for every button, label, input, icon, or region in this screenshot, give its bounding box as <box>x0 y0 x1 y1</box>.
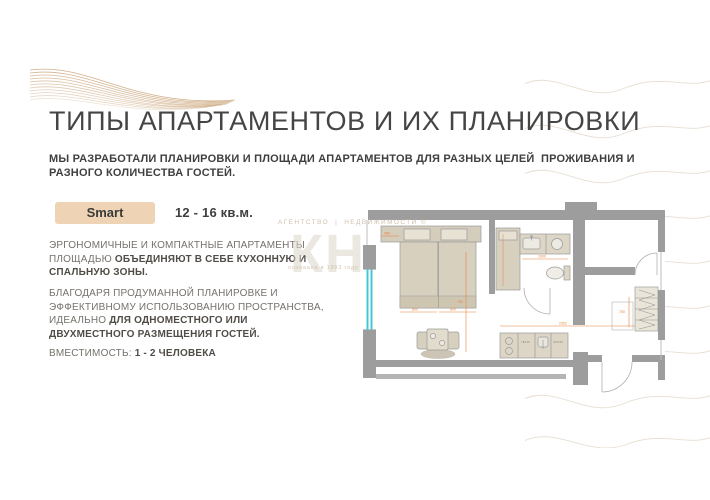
dining-table-group <box>417 329 459 359</box>
basin-icon <box>552 239 563 250</box>
plate-icon <box>430 333 435 338</box>
dim-label: 800 <box>450 308 456 312</box>
dim-label: 700 <box>619 310 625 314</box>
page-title: ТИПЫ АПАРТАМЕНТОВ И ИХ ПЛАНИРОВКИ <box>49 106 649 137</box>
plate-icon <box>439 340 444 345</box>
watermark-separator: | <box>335 219 338 226</box>
dim-label: 800 <box>412 308 418 312</box>
dim-label: 450 <box>384 232 390 236</box>
apartment-type-badge: Smart <box>55 202 155 224</box>
capacity-line: ВМЕСТИМОСТЬ: 1 - 2 ЧЕЛОВЕКА <box>49 347 329 361</box>
dim-label: 750 <box>457 300 463 304</box>
floor-plan: ПМ 45 ХОЛ 60 <box>363 202 665 397</box>
subtitle-text: МЫ РАЗРАБОТАЛИ ПЛАНИРОВКИ И ПЛОЩАДИ АПАР… <box>49 152 669 180</box>
paragraph-1: ЭРГОНОМИЧНЫЕ И КОМПАКТНЫЕ АПАРТАМЕНТЫ ПЛ… <box>49 239 307 280</box>
kitchen-label: ХОЛ 60 <box>553 340 563 344</box>
watermark-agency: АГЕНТСТВО <box>278 219 329 226</box>
table-icon <box>427 329 448 350</box>
chair-icon <box>447 332 459 349</box>
dim-label: 2352 <box>559 322 567 326</box>
rug <box>421 350 455 359</box>
slide: ТИПЫ АПАРТАМЕНТОВ И ИХ ПЛАНИРОВКИ МЫ РАЗ… <box>0 0 710 500</box>
kitchen-group: ПМ 45 ХОЛ 60 <box>500 333 568 358</box>
kitchen-label: ПМ 45 <box>522 340 531 344</box>
toilet-icon <box>547 267 564 279</box>
dim-label: 1000 <box>538 255 546 259</box>
area-range-label: 12 - 16 кв.м. <box>175 205 253 220</box>
window <box>363 269 376 330</box>
capacity-value: 1 - 2 ЧЕЛОВЕКА <box>135 348 216 359</box>
paragraph-2: БЛАГОДАРЯ ПРОДУМАННОЙ ПЛАНИРОВКЕ И ЭФФЕК… <box>49 287 325 341</box>
capacity-label: ВМЕСТИМОСТЬ: <box>49 348 135 359</box>
